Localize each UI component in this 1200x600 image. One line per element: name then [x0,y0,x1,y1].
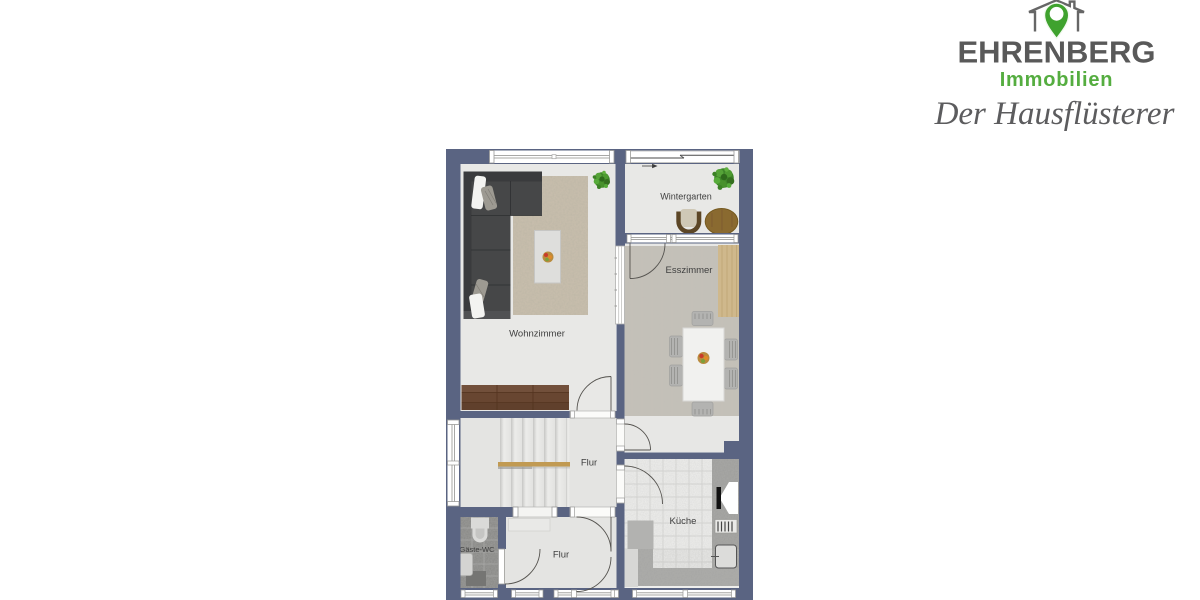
svg-text:EHRENBERG: EHRENBERG [957,35,1155,70]
svg-text:Der Hausflüsterer: Der Hausflüsterer [934,96,1175,132]
svg-text:Gäste-WC: Gäste-WC [459,545,495,554]
svg-text:Küche: Küche [670,516,697,527]
svg-text:Flur: Flur [581,458,597,469]
svg-text:Esszimmer: Esszimmer [666,265,713,276]
svg-text:Wohnzimmer: Wohnzimmer [509,329,565,340]
svg-text:Wintergarten: Wintergarten [660,192,712,202]
svg-text:Immobilien: Immobilien [1000,69,1114,91]
svg-text:Flur: Flur [553,550,569,561]
